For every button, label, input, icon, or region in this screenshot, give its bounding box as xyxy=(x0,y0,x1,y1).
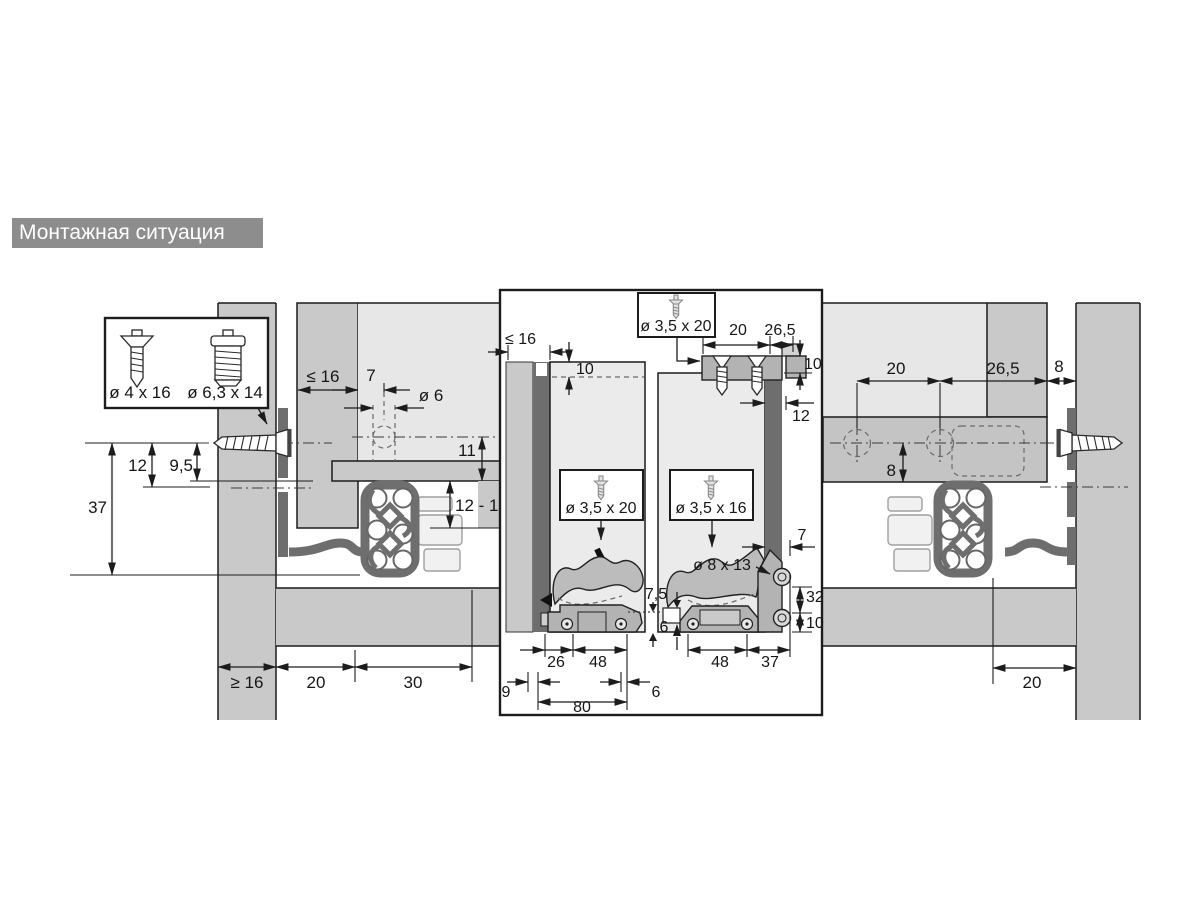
screw-callout-top: ø 3,5 x 20 xyxy=(640,318,711,335)
dim-rear-gap: ≤ 16 xyxy=(307,367,340,386)
screw-label-63x14: ø 6,3 x 14 xyxy=(187,383,263,402)
dim-hole-dia: ø 6 xyxy=(419,386,444,405)
cam-fitting-upper xyxy=(774,569,791,586)
right-slide-profile xyxy=(938,485,1068,573)
dim-row-9: 9 xyxy=(502,684,511,701)
dim-right-top-8: 8 xyxy=(1054,357,1063,376)
dim-right-v8: 8 xyxy=(887,461,896,480)
dim-right-top-20: 20 xyxy=(887,359,906,378)
technical-drawing: ø 4 x 16 ø 6,3 x 14 xyxy=(0,0,1200,900)
dim-9-5: 9,5 xyxy=(169,456,193,475)
drawer-bottom-bar xyxy=(332,461,500,481)
dim-hole-8x13: ø 8 x 13 xyxy=(693,557,751,574)
screw-callout-right: ø 3,5 x 16 xyxy=(675,500,746,517)
dim-37: 37 xyxy=(88,498,107,517)
screw-label-4x16: ø 4 x 16 xyxy=(109,383,170,402)
dim-row-80: 80 xyxy=(573,699,591,716)
left-screw-info-box: ø 4 x 16 ø 6,3 x 14 xyxy=(105,318,268,424)
dim-right-bottom-20: 20 xyxy=(1023,673,1042,692)
dim-center-top-20: 20 xyxy=(729,322,747,339)
dim-12: 12 xyxy=(128,456,147,475)
dim-row-26: 26 xyxy=(547,654,565,671)
dim-center-right-10: 10 xyxy=(804,356,822,373)
dim-row-6: 6 xyxy=(652,684,661,701)
right-cabinet-wall xyxy=(1076,303,1140,720)
dim-q10: 10 xyxy=(806,615,824,632)
mounting-situation-page: Монтажная ситуация xyxy=(0,0,1200,900)
dim-q37: 37 xyxy=(761,654,779,671)
dim-bottom-30: 30 xyxy=(404,673,423,692)
dim-bottom-20: 20 xyxy=(307,673,326,692)
right-slide-ghost-parts xyxy=(888,497,932,571)
dim-gap-7-5: 7,5 xyxy=(645,586,667,603)
screw-callout-left: ø 3,5 x 20 xyxy=(565,500,636,517)
panhead-screw-icon xyxy=(211,330,245,386)
right-drawer-area xyxy=(822,303,1047,482)
cam-fitting-lower xyxy=(774,610,791,627)
dim-q7: 7 xyxy=(798,527,807,544)
dim-q48: 48 xyxy=(711,654,729,671)
dim-gap-6: 6 xyxy=(660,619,669,636)
dim-row-48: 48 xyxy=(589,654,607,671)
dim-center-panel-max: ≤ 16 xyxy=(505,331,536,348)
center-detail-box: ≤ 16 10 ø 3,5 x 20 xyxy=(488,290,824,716)
dim-right-top-26-5: 26,5 xyxy=(986,359,1019,378)
dim-q32: 32 xyxy=(806,589,824,606)
dim-front-offset: 7 xyxy=(366,366,375,385)
dim-center-inset-10: 10 xyxy=(576,361,594,378)
dim-panel-min: ≥ 16 xyxy=(231,673,264,692)
dim-center-strip-12: 12 xyxy=(792,408,810,425)
dim-center-top-26-5: 26,5 xyxy=(764,322,795,339)
dim-11: 11 xyxy=(458,441,476,460)
